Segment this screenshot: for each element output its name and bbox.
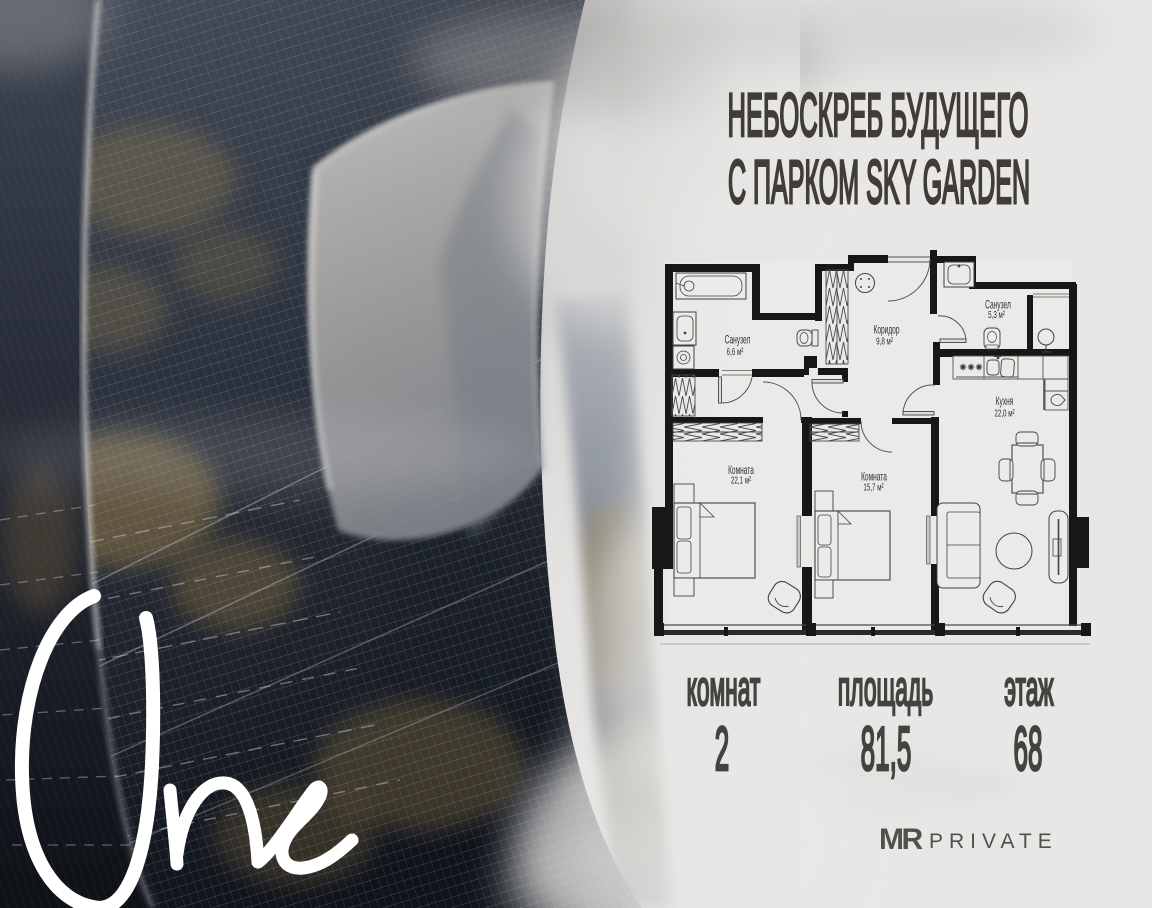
svg-text:6,6 м²: 6,6 м² [727, 345, 744, 357]
svg-text:81,5: 81,5 [861, 715, 912, 784]
svg-text:комнат: комнат [687, 661, 761, 716]
svg-text:НЕБОСКРЕБ БУДУЩЕГО: НЕБОСКРЕБ БУДУЩЕГО [728, 81, 1029, 149]
svg-text:22,1 м²: 22,1 м² [731, 474, 751, 486]
svg-text:68: 68 [1014, 715, 1043, 784]
svg-text:9,8 м²: 9,8 м² [876, 335, 893, 347]
svg-text:PRIVATE: PRIVATE [929, 830, 1058, 853]
svg-text:площадь: площадь [838, 661, 933, 716]
svg-text:этаж: этаж [1004, 661, 1053, 716]
svg-text:15,7 м²: 15,7 м² [863, 481, 883, 493]
svg-text:22,0 м²: 22,0 м² [994, 407, 1014, 419]
svg-text:5,3 м²: 5,3 м² [988, 308, 1005, 320]
svg-text:2: 2 [715, 715, 729, 784]
svg-text:С ПАРКОМ SKY GARDEN: С ПАРКОМ SKY GARDEN [728, 148, 1030, 216]
svg-text:MR: MR [879, 823, 923, 856]
